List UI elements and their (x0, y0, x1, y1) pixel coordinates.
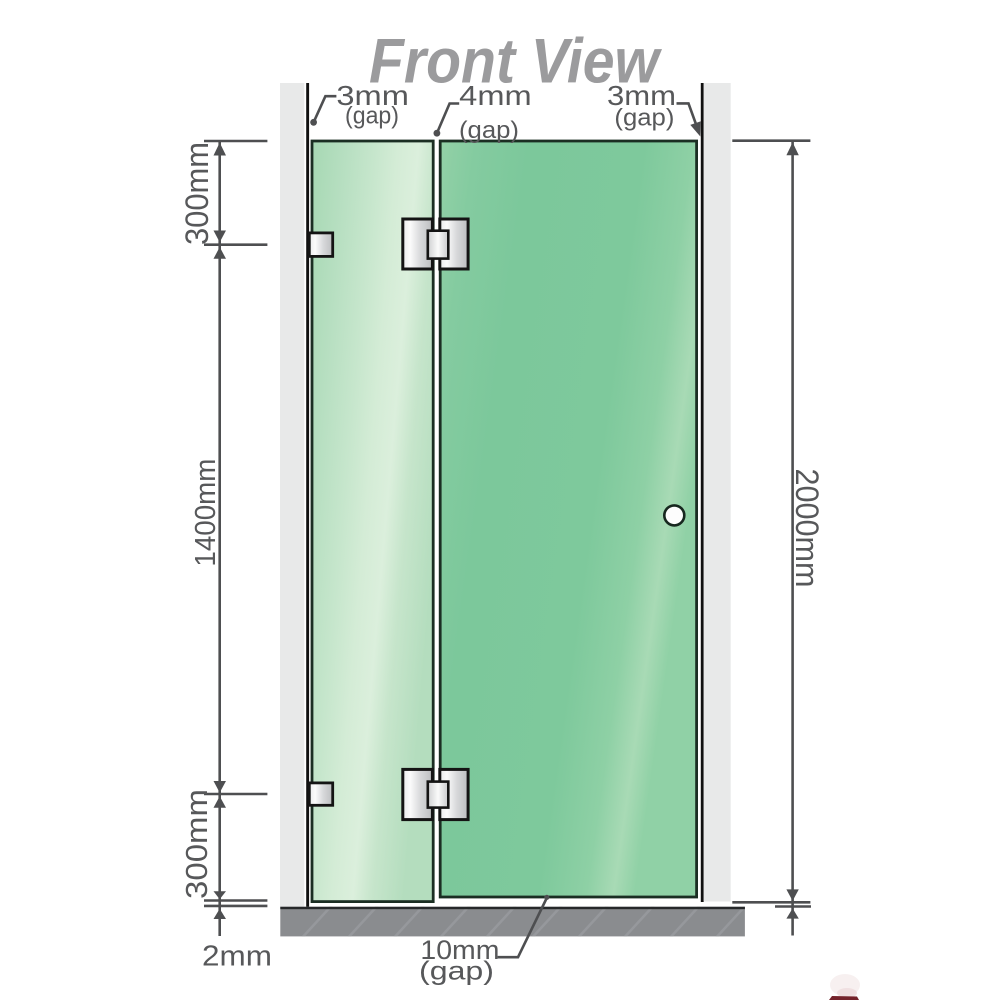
svg-text:(gap): (gap) (459, 117, 519, 144)
svg-text:(gap): (gap) (345, 103, 399, 130)
svg-text:300mm: 300mm (180, 789, 214, 899)
svg-text:1400mm: 1400mm (190, 459, 222, 567)
svg-text:(gap): (gap) (614, 104, 674, 131)
svg-text:2000mm: 2000mm (789, 469, 825, 588)
svg-text:(gap): (gap) (419, 955, 494, 985)
svg-text:300mm: 300mm (179, 142, 215, 245)
svg-text:4mm: 4mm (459, 80, 532, 111)
svg-text:2mm: 2mm (202, 940, 272, 972)
